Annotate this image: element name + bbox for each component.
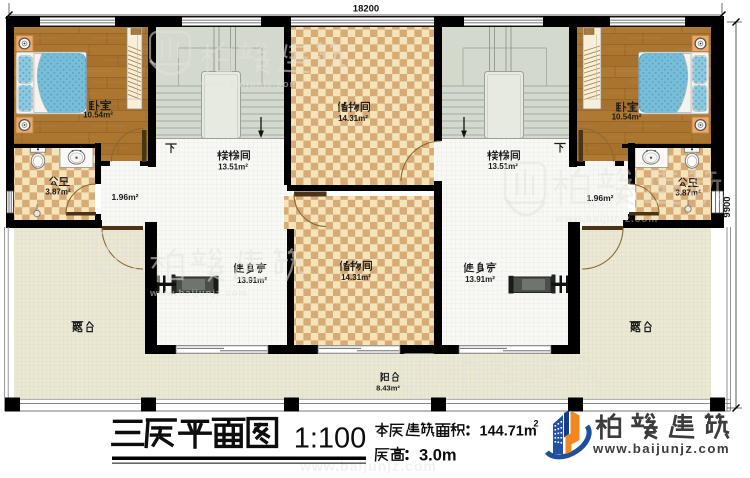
svg-text:1.96m²: 1.96m² xyxy=(587,193,614,203)
svg-text:1:100: 1:100 xyxy=(294,423,367,455)
svg-text:www.baijunjz.com: www.baijunjz.com xyxy=(200,79,299,90)
svg-text:8.43m²: 8.43m² xyxy=(376,384,400,393)
svg-text:18200: 18200 xyxy=(353,4,379,15)
svg-text:9900: 9900 xyxy=(722,196,733,217)
svg-text:14.31m²: 14.31m² xyxy=(338,114,368,123)
svg-text:13.51m²: 13.51m² xyxy=(218,163,248,172)
svg-text:3.87m²: 3.87m² xyxy=(45,188,71,197)
svg-text:144.71m: 144.71m xyxy=(480,423,537,439)
svg-text:www.baijunjz.com: www.baijunjz.com xyxy=(299,458,437,473)
svg-text:1.96m²: 1.96m² xyxy=(112,192,139,202)
svg-text:www.baijunjz.com: www.baijunjz.com xyxy=(592,441,730,456)
svg-text:2: 2 xyxy=(534,419,539,429)
svg-text:14.31m²: 14.31m² xyxy=(341,273,371,282)
svg-text:3.0m: 3.0m xyxy=(419,447,457,465)
svg-text:10.54m²: 10.54m² xyxy=(83,111,113,120)
svg-text:www.baijunjz.com: www.baijunjz.com xyxy=(555,214,658,225)
svg-text:10.54m²: 10.54m² xyxy=(612,113,642,122)
svg-text:13.91m²: 13.91m² xyxy=(465,275,495,284)
svg-text:www.baijunjz.com: www.baijunjz.com xyxy=(149,288,248,299)
